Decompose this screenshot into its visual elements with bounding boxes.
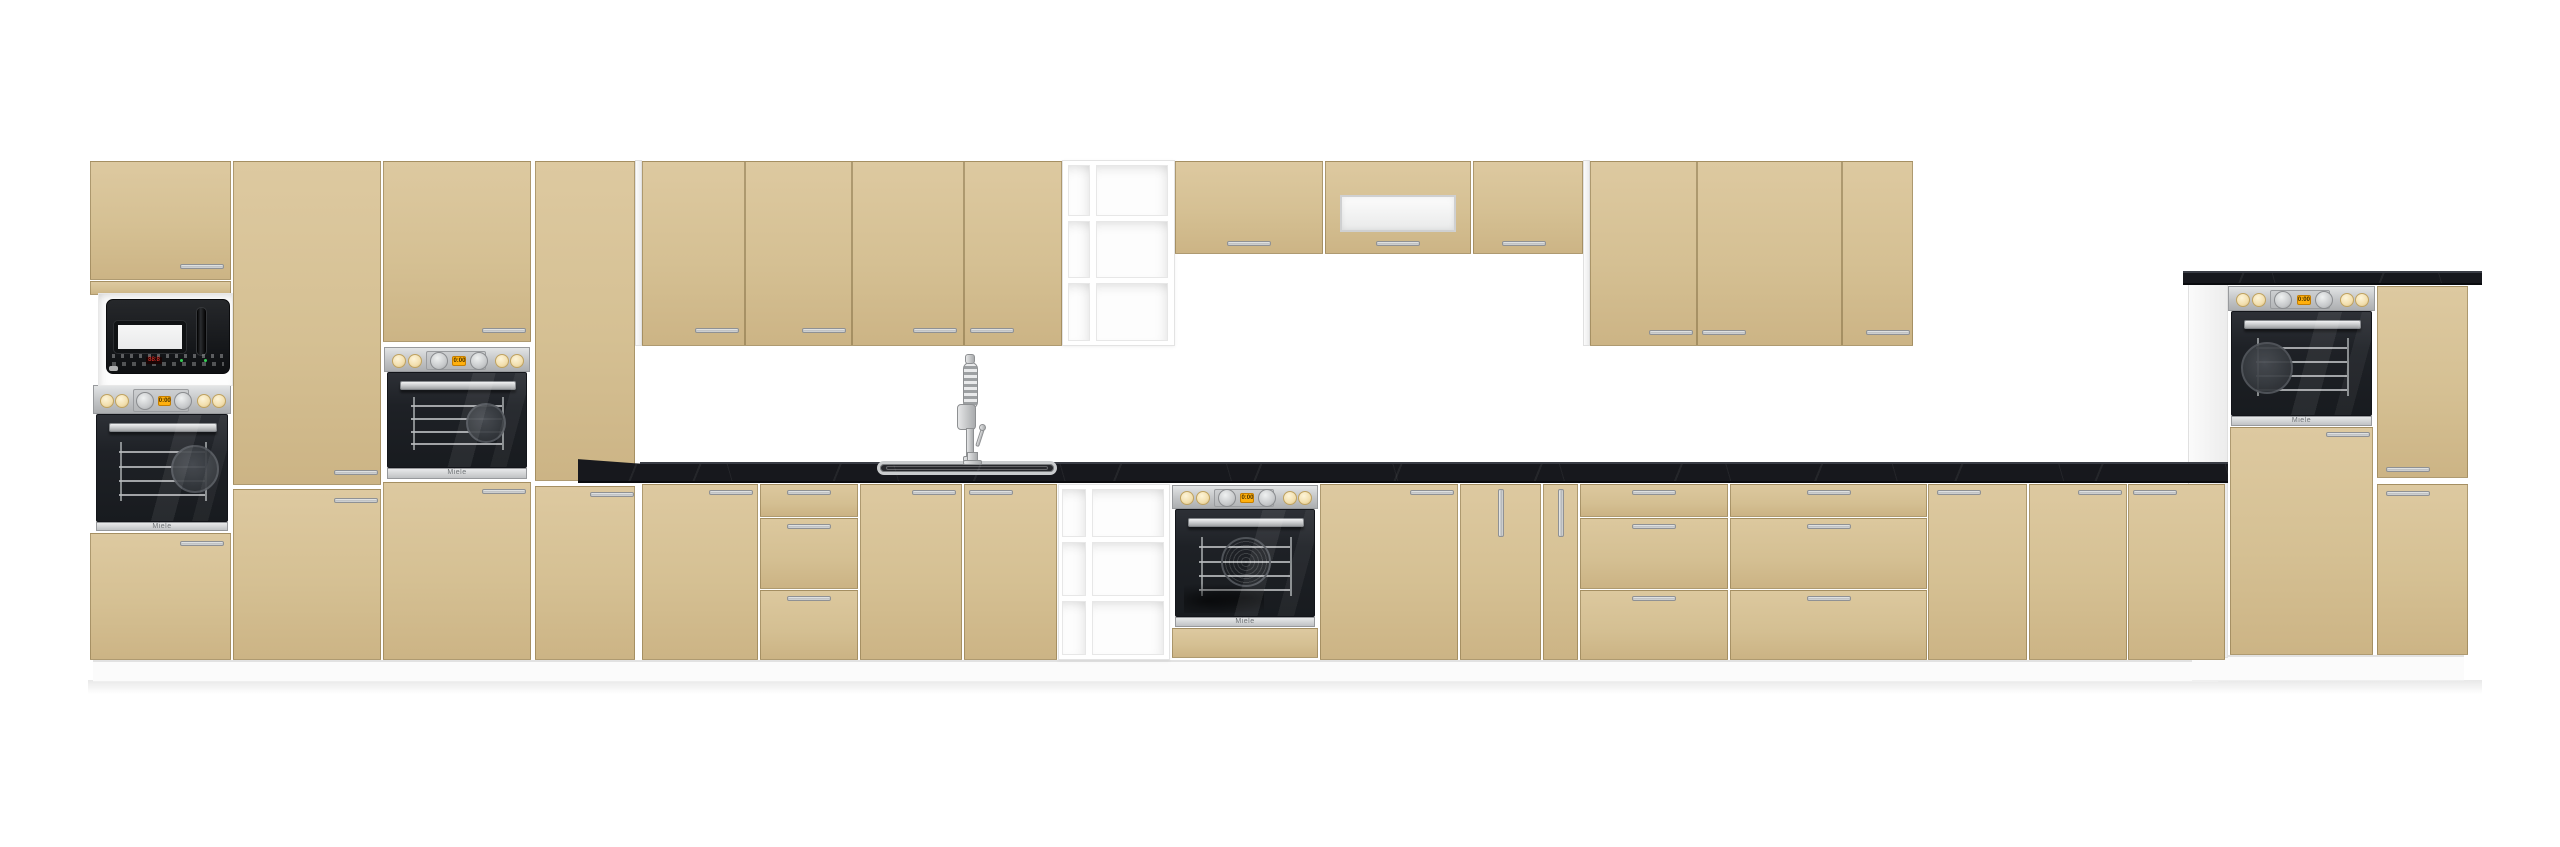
tall-cab4-lower-door	[535, 486, 635, 660]
cabinet-handle	[2133, 490, 2177, 495]
microwave-buttons-row	[112, 362, 224, 366]
cabinet-handle	[2386, 467, 2430, 472]
plinth	[2192, 655, 2464, 681]
oven-display: 0:00	[158, 396, 171, 406]
floor-shadow	[88, 680, 2482, 694]
shelf-cubby	[1096, 165, 1168, 216]
faucet-lever-knob	[979, 424, 986, 431]
oven-knob	[2315, 291, 2333, 309]
cabinet-handle	[912, 490, 956, 495]
tall-cab1-bottom-door	[90, 533, 231, 660]
cabinet-handle	[2326, 432, 2370, 437]
cabinet-handle	[482, 489, 526, 494]
sink-bowl-line	[886, 466, 1048, 470]
shelf-cubby	[1092, 601, 1164, 655]
drawer-front	[760, 484, 858, 517]
built-in-oven-tall-left-door	[96, 414, 228, 522]
base-sink-door-right	[964, 484, 1057, 660]
oven-knob	[115, 394, 129, 408]
oven-knob	[470, 352, 488, 370]
faucet-base-plate	[963, 460, 982, 465]
oven-brand-mark: Miele	[387, 468, 527, 479]
cabinet-handle	[970, 328, 1014, 333]
cabinet-handle	[1632, 596, 1676, 601]
oven-knob	[1283, 491, 1297, 505]
base-door-5	[2128, 484, 2225, 660]
microwave-indicator-dot	[180, 359, 183, 362]
microwave-window	[114, 321, 186, 353]
cabinet-handle	[802, 328, 846, 333]
built-in-oven-base-control-strip: 0:00	[1172, 485, 1318, 509]
oven-glass-reflection	[2232, 312, 2371, 415]
oven-knob	[197, 394, 211, 408]
cabinet-handle	[482, 328, 526, 333]
cabinet-handle	[1807, 524, 1851, 529]
oven-knob	[1298, 491, 1312, 505]
cabinet-handle	[1376, 241, 1420, 246]
microwave-indicator-dot	[204, 359, 207, 362]
cabinet-handle	[2386, 491, 2430, 496]
tall-cab2-upper-door	[233, 161, 381, 485]
faucet-head	[957, 404, 976, 430]
oven-knob	[1218, 489, 1236, 507]
shelf-cubby	[1092, 542, 1164, 596]
oven-knob	[510, 354, 524, 368]
microwave-control-panel	[112, 354, 224, 358]
wall-door-3	[852, 161, 964, 346]
cabinet-handle	[969, 490, 1013, 495]
wall-door-4	[964, 161, 1062, 346]
oven-knob	[2236, 293, 2250, 307]
shelf-cubby	[1068, 165, 1090, 216]
oven-knob	[136, 392, 154, 410]
microwave-logo	[109, 366, 118, 371]
cabinet-handle	[334, 498, 378, 503]
plinth	[93, 660, 2218, 682]
oven-knob	[2340, 293, 2354, 307]
cabinet-handle	[1632, 490, 1676, 495]
oven-glass-reflection	[1176, 510, 1314, 616]
tall-cab2-lower-door	[233, 489, 381, 660]
oven-knob	[100, 394, 114, 408]
cabinet-handle	[1632, 524, 1676, 529]
oven-knob	[408, 354, 422, 368]
cabinet-handle	[2078, 490, 2122, 495]
cabinet-handle	[590, 492, 634, 497]
shelf-cubby	[1062, 489, 1086, 537]
right-unit-lower-door	[2377, 484, 2468, 655]
cabinet-handle	[787, 490, 831, 495]
oven-knob	[174, 392, 192, 410]
oven-display: 0:00	[2297, 295, 2311, 305]
drawer-front	[1730, 484, 1927, 517]
microwave-door-handle	[196, 307, 207, 356]
shelf-cubby	[1096, 283, 1168, 341]
wall-run-side-panel	[635, 160, 642, 346]
kitchen-render: 0:00Miele0:00Miele0:00Miele0:00Miele88:8	[0, 0, 2560, 847]
cabinet-handle	[1502, 241, 1546, 246]
built-in-oven-right-door	[2231, 311, 2372, 416]
shelf-cubby	[1092, 489, 1164, 537]
oven-knob	[212, 394, 226, 408]
shelf-cubby	[1062, 542, 1086, 596]
oven-knob	[2252, 293, 2266, 307]
oven-knob	[430, 352, 448, 370]
cabinet-handle	[1410, 490, 1454, 495]
shelf-cubby	[1068, 221, 1090, 278]
base-door-3	[1928, 484, 2027, 660]
built-in-oven-right-control-strip: 0:00	[2228, 286, 2375, 311]
wall-door-5	[1590, 161, 1697, 346]
base-door-2	[1320, 484, 1458, 660]
cabinet-handle	[787, 596, 831, 601]
tall-cab1-top-door	[90, 161, 231, 280]
base-door-1	[642, 484, 758, 660]
oven-knob	[1196, 491, 1210, 505]
oven-display: 0:00	[1240, 493, 1254, 503]
cabinet-handle	[1807, 490, 1851, 495]
wall-door-6	[1697, 161, 1842, 346]
oven-base-bottom-panel	[1172, 628, 1318, 658]
faucet-top-cap	[965, 354, 975, 364]
oven-glass-reflection	[97, 415, 227, 521]
base-sink-door-left	[860, 484, 962, 660]
cabinet-handle	[1807, 596, 1851, 601]
glass-door-insert	[1340, 195, 1456, 232]
built-in-oven-tall-mid-control-strip: 0:00	[384, 347, 530, 372]
cabinet-handle	[334, 470, 378, 475]
cabinet-handle	[1649, 330, 1693, 335]
cabinet-handle	[695, 328, 739, 333]
wall-door-1	[642, 161, 745, 346]
wall-door-2	[745, 161, 852, 346]
built-in-oven-tall-mid-door	[387, 372, 527, 468]
cabinet-handle	[180, 264, 224, 269]
cabinet-handle	[180, 541, 224, 546]
pullout-handle	[1558, 489, 1564, 537]
shelf-cubby	[1068, 283, 1090, 341]
oven-brand-mark: Miele	[96, 522, 228, 531]
tall-cab3-top-door	[383, 161, 531, 342]
right-oven-lower-door	[2230, 427, 2373, 655]
worktop-high	[2183, 271, 2482, 285]
base-door-4	[2029, 484, 2127, 660]
oven-glass-reflection	[388, 373, 526, 467]
cabinet-handle	[1866, 330, 1910, 335]
oven-knob	[1180, 491, 1194, 505]
faucet-spring-coil	[963, 362, 978, 409]
oven-knob	[392, 354, 406, 368]
oven-brand-mark: Miele	[1175, 617, 1315, 627]
oven-knob	[495, 354, 509, 368]
shelf-cubby	[1096, 221, 1168, 278]
oven-knob	[2355, 293, 2369, 307]
cabinet-handle	[1702, 330, 1746, 335]
tall-cab3-bottom-door	[383, 482, 531, 660]
shelf-cubby	[1062, 601, 1086, 655]
wall-door-7	[1842, 161, 1913, 346]
cabinet-handle	[1937, 490, 1981, 495]
cabinet-handle	[787, 524, 831, 529]
oven-display: 0:00	[452, 356, 466, 366]
pullout-handle	[1498, 489, 1504, 537]
drawer-front	[1580, 484, 1728, 517]
cabinet-handle	[913, 328, 957, 333]
microwave-display: 88:8	[146, 357, 162, 364]
built-in-oven-base-door	[1175, 509, 1315, 617]
wall-run-side-panel	[1583, 160, 1590, 346]
cabinet-handle	[1227, 241, 1271, 246]
tall-cab4-upper-door	[535, 161, 635, 481]
built-in-oven-tall-left-control-strip: 0:00	[93, 385, 231, 414]
oven-brand-mark: Miele	[2231, 416, 2372, 426]
right-unit-upper-door	[2377, 286, 2468, 478]
cabinet-handle	[709, 490, 753, 495]
oven-knob	[2274, 291, 2292, 309]
